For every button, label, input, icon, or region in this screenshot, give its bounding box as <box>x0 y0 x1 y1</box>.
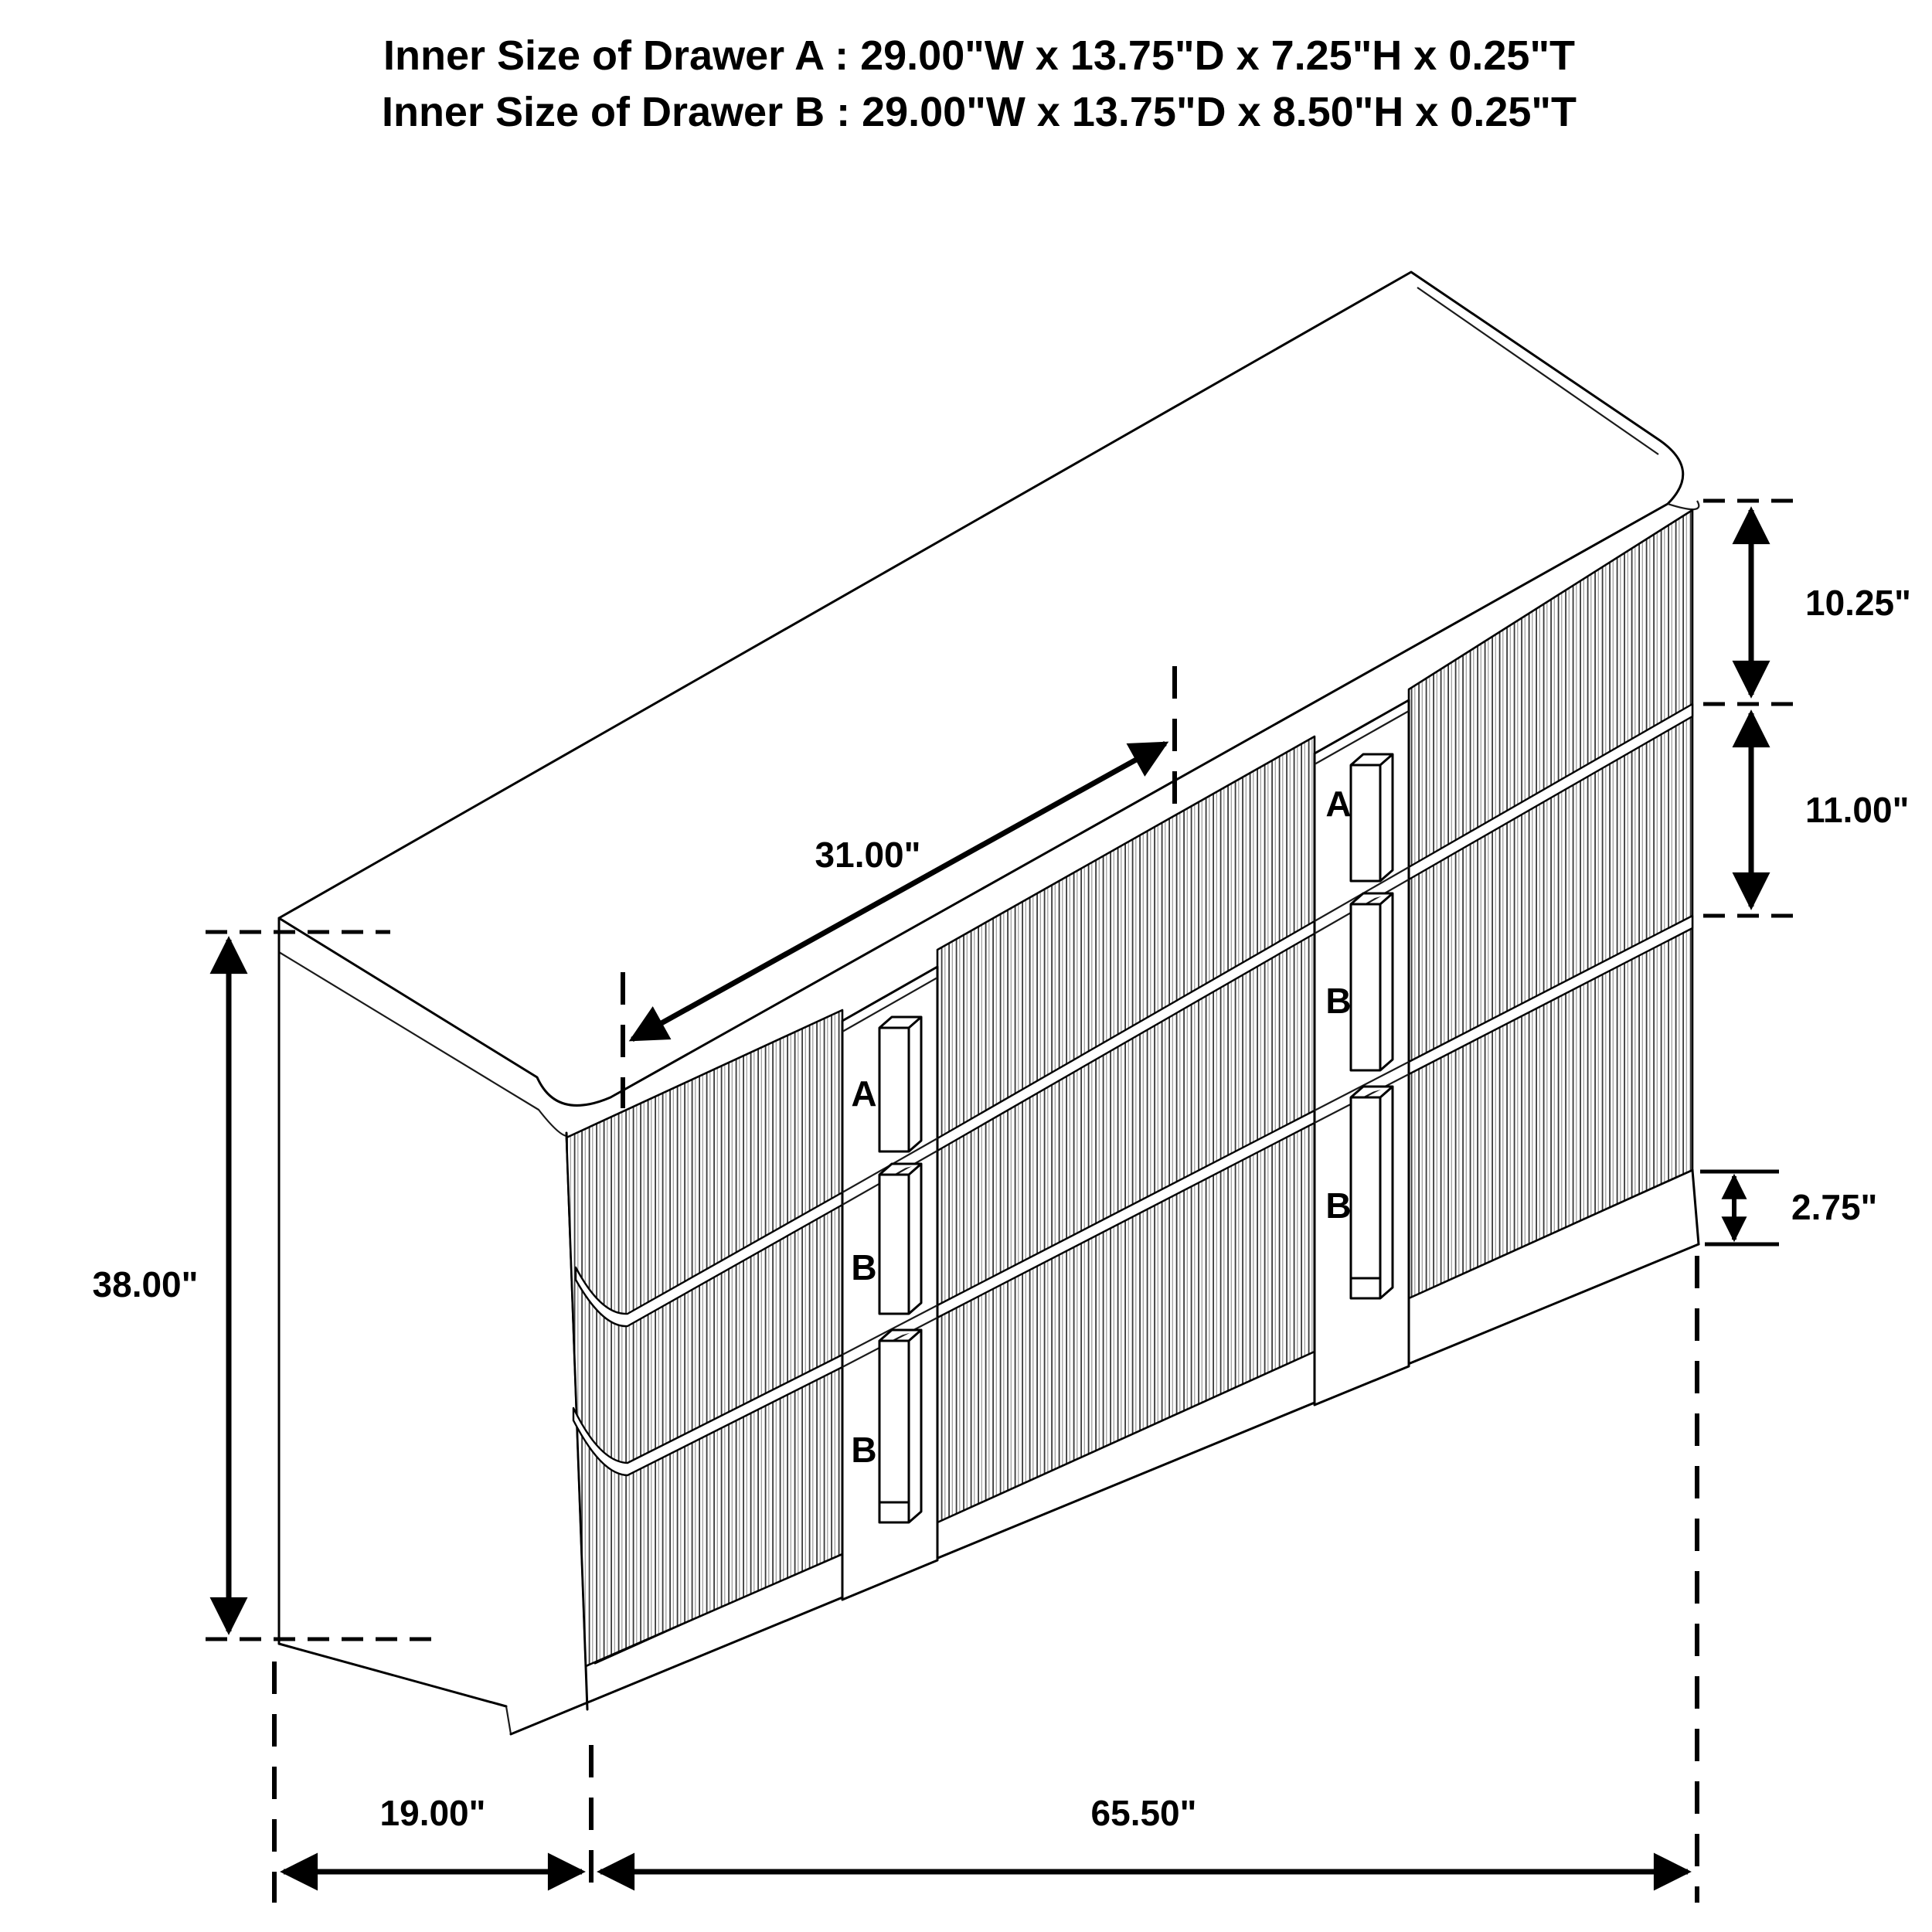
overall-depth-label: 19.00" <box>380 1793 486 1833</box>
right-bank-drawer-a-label: A <box>1325 784 1351 824</box>
right-bank-drawer-b2-label: B <box>1325 1185 1351 1226</box>
right-handle-bottom-segment <box>1351 1087 1393 1298</box>
left-plinth-edge <box>506 1706 511 1734</box>
left-handle-middle-segment <box>879 1164 921 1314</box>
drawer-a-front-height-label: 10.25" <box>1805 583 1911 623</box>
title-block: Inner Size of Drawer A : 29.00"W x 13.75… <box>382 32 1577 135</box>
right-handle-top-segment <box>1351 754 1393 881</box>
base-height-label: 2.75" <box>1791 1187 1877 1227</box>
overall-height-label: 38.00" <box>93 1264 199 1304</box>
left-handle-top-segment <box>879 1017 921 1151</box>
title-line-2: Inner Size of Drawer B : 29.00"W x 13.75… <box>382 89 1577 135</box>
left-bank-drawer-a-label: A <box>851 1073 876 1114</box>
diagram-canvas: Inner Size of Drawer A : 29.00"W x 13.75… <box>0 0 1932 1932</box>
right-bank-fluted-front <box>1409 510 1692 1298</box>
center-section-width-label: 31.00" <box>815 835 921 875</box>
title-line-1: Inner Size of Drawer A : 29.00"W x 13.75… <box>383 32 1575 79</box>
dimension-drawer-heights: 10.25" 11.00" <box>1703 501 1911 916</box>
left-handle-bottom-segment <box>879 1330 921 1522</box>
dimension-overall-height: 38.00" <box>93 932 437 1639</box>
right-bank-drawer-b1-label: B <box>1325 981 1351 1021</box>
left-bank-drawer-b2-label: B <box>851 1430 876 1470</box>
left-bank-fluted-front <box>566 1010 842 1666</box>
left-handle-bar <box>879 1017 921 1522</box>
top-edge-band-right-corner <box>1668 501 1699 509</box>
left-bank-drawer-b1-label: B <box>851 1247 876 1287</box>
right-handle-bar <box>1351 754 1393 1298</box>
plinth-right-edge <box>1692 1170 1699 1244</box>
drawer-b-front-height-label: 11.00" <box>1805 790 1909 830</box>
cabinet-drawing: A B B A B B <box>279 272 1699 1734</box>
dimension-base-height: 2.75" <box>1700 1172 1877 1244</box>
overall-width-label: 65.50" <box>1091 1793 1197 1833</box>
right-handle-middle-segment <box>1351 893 1393 1070</box>
furniture-dimension-diagram: Inner Size of Drawer A : 29.00"W x 13.75… <box>0 0 1932 1932</box>
left-side-panel-bottom-edge <box>279 1644 506 1706</box>
